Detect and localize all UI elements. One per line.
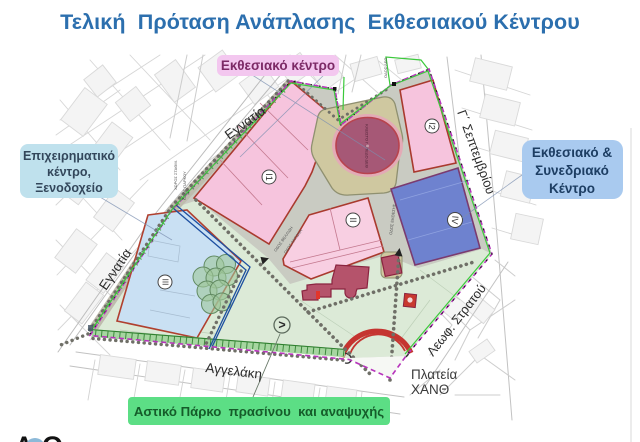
svg-text:Ξενοδοχείο: Ξενοδοχείο (35, 181, 103, 195)
svg-text:ΧΑΝΘ: ΧΑΝΘ (411, 382, 449, 397)
svg-text:Κέντρο: Κέντρο (549, 181, 595, 196)
svg-text:III: III (161, 279, 170, 286)
svg-text:Εκθεσιακό &: Εκθεσιακό & (532, 145, 612, 160)
svg-text:Αστικό Πάρκο πρασίνου και αν: Αστικό Πάρκο πρασίνου και αναψυχής (134, 404, 384, 419)
svg-text:κέντρο,: κέντρο, (47, 165, 91, 179)
svg-text:ΧΩΡΟΣ ΣΤΑΘΜ.: ΧΩΡΟΣ ΣΤΑΘΜ. (173, 160, 178, 190)
svg-text:Επιχειρηματικό: Επιχειρηματικό (23, 149, 115, 163)
svg-text:ΟΔΟΣ ΔΕΘ: ΟΔΟΣ ΔΕΘ (383, 57, 388, 78)
svg-text:Πλατεία: Πλατεία (411, 367, 457, 382)
svg-text:Εκθεσιακό κέντρο: Εκθεσιακό κέντρο (221, 58, 335, 73)
svg-text:>: > (278, 318, 285, 332)
svg-text:Θ: Θ (42, 431, 63, 442)
svg-text:IV: IV (450, 215, 461, 224)
svg-text:Τελική Πρόταση Ανάπλασης Εκθ: Τελική Πρόταση Ανάπλασης Εκθεσιακού Κέντ… (60, 10, 580, 34)
svg-text:Συνεδριακό: Συνεδριακό (535, 163, 609, 178)
svg-text:II: II (348, 217, 358, 222)
svg-text:I1: I1 (264, 173, 274, 181)
svg-text:ΟΔΟΣ ΠΑΡΚΟΥ: ΟΔΟΣ ΠΑΡΚΟΥ (182, 171, 187, 200)
svg-text:I2: I2 (427, 122, 438, 130)
